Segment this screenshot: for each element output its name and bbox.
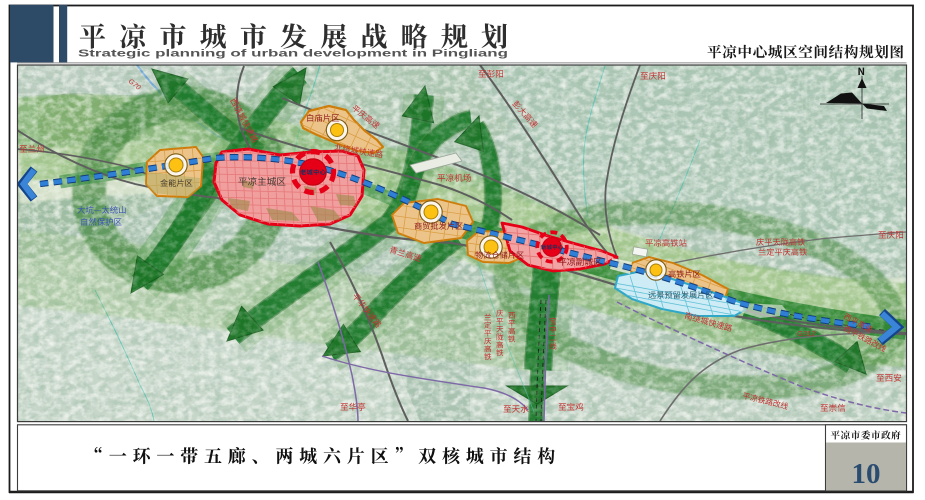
svg-text:G312: G312 [797,329,816,338]
svg-text:Strategic planning of urban de: Strategic planning of urban development … [78,49,508,60]
svg-text:10: 10 [852,458,881,490]
